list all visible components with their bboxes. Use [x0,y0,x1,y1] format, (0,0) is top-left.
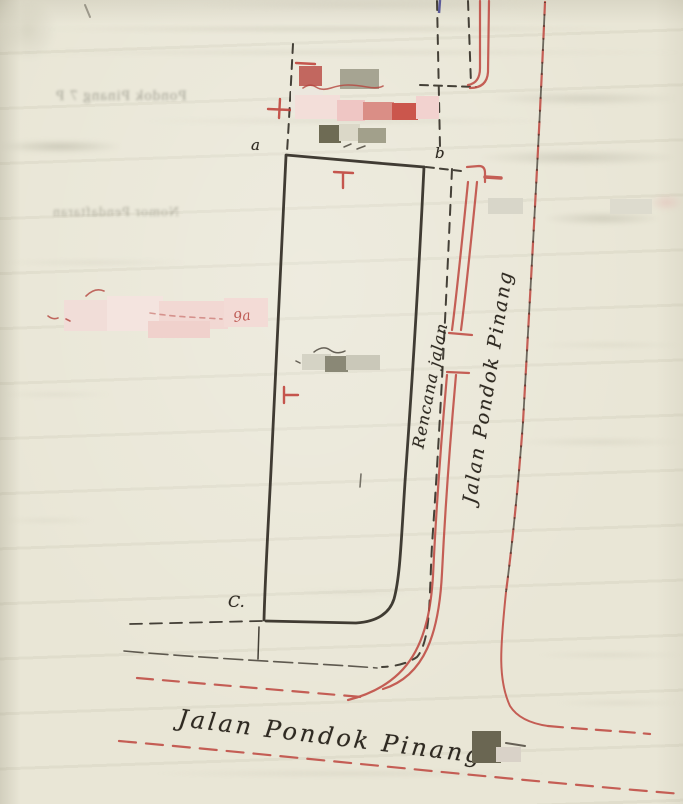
corner-tick-mark [85,5,90,17]
black-scribble-inner [314,348,345,353]
red-scribbles [48,85,383,321]
black-dot-inner [296,361,300,363]
red-scribble-top [303,85,383,89]
red-scribble-left-c [150,313,222,319]
red-scribble-left-a [48,316,70,321]
residual-marks: 9a [0,0,683,804]
scanned-cadastral-sketch: Pondok Pinang 7 P Nomor Pendaftaran a b … [0,0,683,804]
red-remnant-text: 9a [232,308,251,326]
dash-after-redaction [506,743,525,746]
black-scribbles [85,5,525,746]
black-scribble-top [344,144,365,149]
red-scribble-left-b [86,290,104,296]
